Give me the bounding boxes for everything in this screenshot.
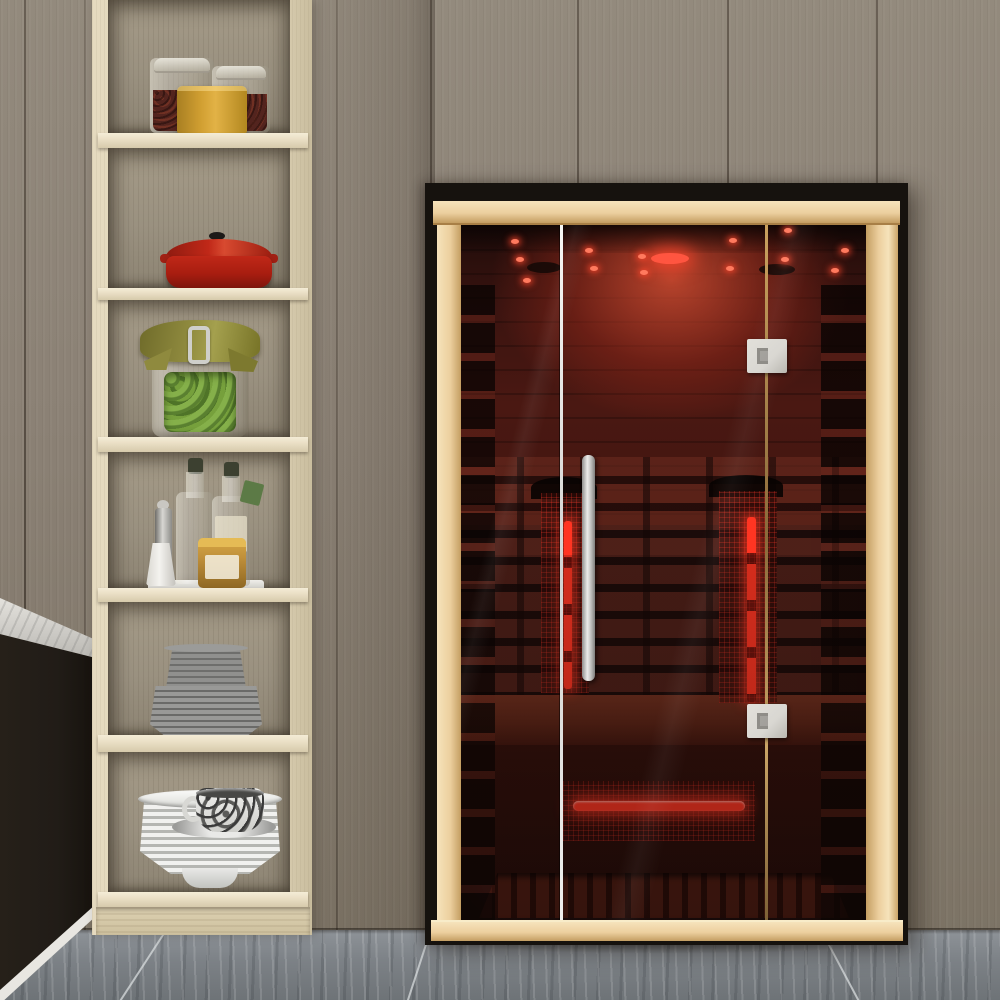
shelf-bay-grey-plates (108, 602, 290, 735)
panel-divider-right (765, 225, 768, 920)
olives (164, 372, 236, 432)
shelf-bay-jars (108, 0, 290, 133)
shelf-bay-white-plates (108, 752, 290, 892)
honey-jar-label (205, 555, 239, 579)
sauna-right-stile (866, 225, 898, 920)
bail-clasp (188, 326, 210, 364)
shelf-bay-olive-jar (108, 300, 290, 437)
door-hinge-upper (747, 339, 787, 373)
cup-opening (196, 788, 264, 798)
door-hinge-lower (747, 704, 787, 738)
bowl-stack-top (164, 644, 248, 652)
open-shelf-unit (92, 0, 312, 935)
plate-stack-foot (182, 868, 238, 888)
shelf-bay-bottles (108, 452, 290, 588)
sauna-glass-front (461, 225, 866, 920)
shelf-board (98, 288, 308, 300)
patterned-teacup (196, 788, 264, 832)
jar-lid (216, 66, 266, 80)
sauna-base-rail (431, 920, 903, 941)
hinge-slot (757, 713, 768, 729)
pot-body (166, 256, 272, 288)
sauna-top-rail (433, 201, 900, 225)
shelf-board (98, 735, 308, 752)
shelf-board (98, 892, 308, 907)
sauna-left-stile (437, 225, 461, 920)
glass-reflection (461, 225, 866, 920)
honey-jar (198, 538, 246, 588)
shelf-board (98, 588, 308, 602)
infrared-sauna (425, 183, 908, 945)
shelf-plinth (96, 907, 310, 935)
canister-rim (177, 86, 247, 91)
bowl-stack (166, 648, 246, 688)
honey-jar-band (198, 538, 246, 547)
wall-shading (300, 0, 435, 940)
yellow-canister (177, 86, 247, 133)
shelf-board (98, 133, 308, 148)
bottle-tag (240, 480, 265, 506)
shelf-board (98, 437, 308, 452)
pot-lid (166, 239, 272, 257)
door-edge-line (560, 225, 563, 920)
door-handle (582, 455, 595, 681)
plate-stack (150, 686, 262, 735)
jar-lid (154, 58, 210, 73)
scene-infrared-sauna-room (0, 0, 1000, 1000)
kitchen-counter (0, 590, 96, 1000)
shelf-bay-pot (108, 148, 290, 288)
hinge-slot (757, 348, 768, 364)
